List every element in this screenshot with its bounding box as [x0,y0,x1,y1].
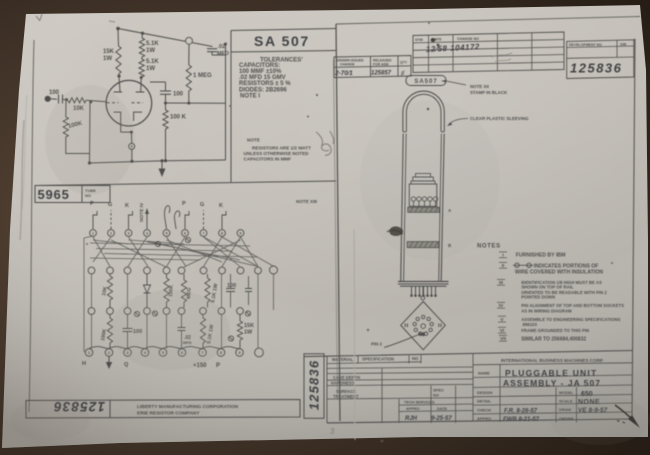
svg-text:CHANGE: CHANGE [340,63,355,67]
svg-text:POINTED DOWN: POINTED DOWN [521,295,555,300]
svg-text:P: P [182,201,186,207]
svg-text:CHANGE NO: CHANGE NO [457,37,479,41]
svg-text:.02: .02 [218,44,226,50]
svg-text:INTERNATIONAL BUSINESS MACHI: INTERNATIONAL BUSINESS MACHINES CORP [501,358,603,363]
svg-text:H: H [82,361,86,367]
svg-text:NOTE I: NOTE I [240,93,260,99]
svg-text:INDICATES PORTIONS OF: INDICATES PORTIONS OF [534,263,599,269]
svg-text:PIN 2: PIN 2 [371,342,383,347]
svg-text:ASSEMBLY - JA 507: ASSEMBLY - JA 507 [503,378,601,388]
svg-text:F.R. 8-26-57: F.R. 8-26-57 [504,409,538,415]
svg-text:NOTE XII: NOTE XII [470,84,489,89]
svg-text:Q: Q [124,362,129,368]
svg-text:PIN ALIGNMENT OF TOP AND BOTTO: PIN ALIGNMENT OF TOP AND BOTTOM SOCKETS [521,303,624,308]
svg-text:1: 1 [92,231,94,235]
svg-text:4: 4 [146,231,148,235]
svg-text:9: 9 [239,351,241,355]
svg-text:DEVELOPMENT NO: DEVELOPMENT NO [569,43,602,47]
svg-text:9: 9 [240,231,242,235]
svg-text:SYM: SYM [415,38,423,42]
svg-text:NOTE IV: NOTE IV [139,202,145,222]
svg-text:100 K: 100 K [170,115,187,121]
svg-text:100: 100 [173,92,184,98]
svg-text:100: 100 [227,283,236,289]
svg-text:3: 3 [128,231,130,235]
svg-text:125857: 125857 [371,71,392,77]
svg-text:FOR ASM: FOR ASM [373,63,389,67]
svg-text:8: 8 [221,231,223,235]
svg-text:2-70⁄1: 2-70⁄1 [334,70,353,77]
svg-text:RESISTORS ± 5 %: RESISTORS ± 5 % [239,81,291,87]
svg-text:7: 7 [203,231,205,235]
svg-text:2: 2 [110,231,112,235]
svg-text:MATERIAL: MATERIAL [332,357,354,362]
svg-text:K: K [219,203,223,209]
svg-text:1W: 1W [244,330,253,336]
svg-text:APPRO: APPRO [406,407,420,411]
svg-text:5: 5 [166,231,168,235]
svg-text:NAME: NAME [478,371,490,376]
svg-text:5965: 5965 [38,187,70,202]
svg-text:DETAIL: DETAIL [477,399,492,404]
svg-text:125836: 125836 [570,61,622,76]
svg-text:1W: 1W [146,48,155,54]
svg-text:RJH: RJH [405,416,418,422]
svg-text:SA507: SA507 [414,79,437,85]
svg-text:CAPACITORS IN MMF: CAPACITORS IN MMF [244,156,292,161]
svg-text:PLUGGABLE UNIT: PLUGGABLE UNIT [505,368,597,378]
svg-text:G: G [200,202,204,208]
svg-text:O⁄M: O⁄M [620,43,626,47]
svg-text:NO: NO [433,392,439,397]
svg-text:9-25-57: 9-25-57 [431,416,452,422]
svg-text:FURNISHED BY IBM: FURNISHED BY IBM [516,253,566,259]
svg-text:NOTES: NOTES [477,244,501,250]
svg-text:6: 6 [184,231,186,235]
svg-text:P: P [216,363,220,369]
svg-text:QTY: QTY [400,61,408,65]
svg-text:STAMP IN BLACK: STAMP IN BLACK [470,90,508,95]
svg-text:TECH SERVICES: TECH SERVICES [404,401,435,405]
svg-text:1: 1 [88,351,90,355]
svg-text:ERIE RESISTOR COMPANY: ERIE RESISTOR COMPANY [137,411,200,417]
svg-text:FRAME GROUNDED TO THIS PIN: FRAME GROUNDED TO THIS PIN [521,328,589,333]
svg-text:HARDNESS: HARDNESS [331,381,355,386]
svg-text:CHECK: CHECK [477,408,491,413]
svg-text:CLEAR PLASTIC SLEEVING: CLEAR PLASTIC SLEEVING [470,116,529,121]
svg-text:1W: 1W [146,66,155,72]
svg-text:CASE DEPTH: CASE DEPTH [333,375,360,380]
svg-text:125836: 125836 [307,360,322,411]
svg-text:G: G [108,202,112,208]
svg-text:.02 MFD 15 GMV: .02 MFD 15 GMV [239,75,286,81]
svg-text:SIMILAR TO 256684,400832: SIMILAR TO 256684,400832 [521,336,586,342]
svg-text:CAPACITORS:: CAPACITORS: [239,63,280,69]
svg-text:5.1K: 5.1K [146,41,159,47]
svg-text:NO: NO [412,356,419,361]
svg-text:5.1K: 5.1K [146,59,159,65]
svg-text:DATE: DATE [437,407,448,411]
svg-text:LIBERTY MANUFACTURING CORPORAT: LIBERTY MANUFACTURING CORPORATION [137,404,239,410]
svg-text:SPECIFICATION: SPECIFICATION [362,357,394,362]
svg-text:15K: 15K [244,323,254,329]
svg-text:RESISTORS ARE 1/2 WATT: RESISTORS ARE 1/2 WATT [252,146,311,151]
svg-text:DIODES: 2B2696: DIODES: 2B2696 [239,87,287,93]
svg-text:NOTE: NOTE [247,138,260,143]
svg-text:APPRO: APPRO [477,416,491,421]
svg-text:3: 3 [330,427,335,436]
svg-text:P: P [90,201,94,207]
svg-text:1 MEG: 1 MEG [193,73,212,79]
svg-text:WIRE COVERED WITH INSULATION: WIRE COVERED WITH INSULATION [515,270,603,276]
svg-text:UNLESS OTHERWISE NOTED: UNLESS OTHERWISE NOTED [244,151,310,156]
svg-text:AS IN WIRING DIAGRAM: AS IN WIRING DIAGRAM [521,308,572,313]
svg-text:1W: 1W [103,56,112,62]
svg-text:MODEL: MODEL [559,390,574,395]
svg-text:MFD: MFD [217,51,229,57]
svg-text:NOTE XIII: NOTE XIII [296,199,317,204]
svg-text:SA 507: SA 507 [254,33,310,49]
svg-text:896103: 896103 [523,322,538,327]
svg-text:K: K [125,203,129,209]
svg-text:FWB 8-21-57: FWB 8-21-57 [503,417,540,423]
svg-text:DESIGN: DESIGN [477,390,492,395]
svg-text:2: 2 [108,351,110,355]
svg-text:15K: 15K [103,49,115,55]
svg-text:100 MMF ±10%: 100 MMF ±10% [239,69,282,75]
